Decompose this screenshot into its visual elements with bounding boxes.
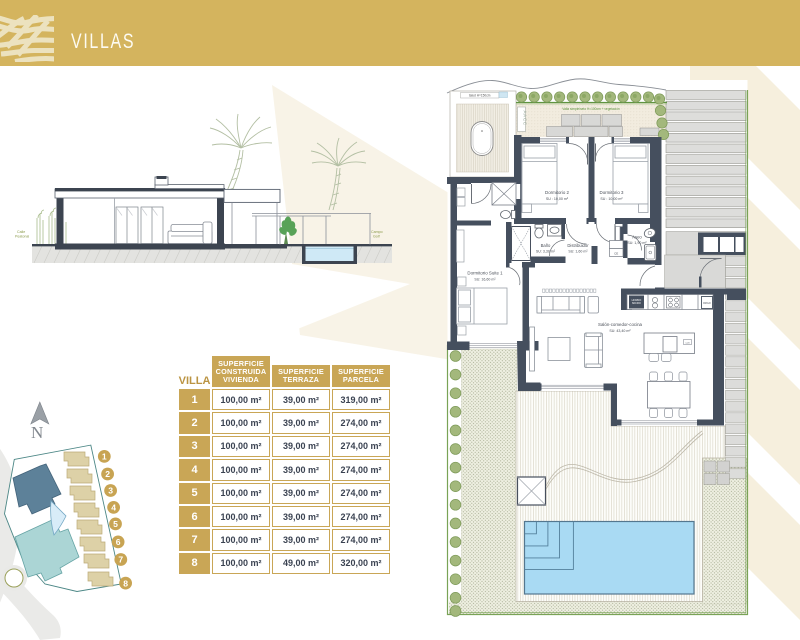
svg-text:Golf: Golf bbox=[373, 235, 380, 239]
svg-text:SU : 10,00 m²: SU : 10,00 m² bbox=[600, 197, 623, 201]
svg-text:2: 2 bbox=[105, 469, 110, 479]
svg-text:CE: CE bbox=[614, 252, 618, 256]
svg-text:talud H=150cm: talud H=150cm bbox=[469, 94, 491, 98]
svg-text:MICRO: MICRO bbox=[632, 301, 641, 305]
svg-text:Baño: Baño bbox=[541, 243, 551, 248]
svg-text:6: 6 bbox=[116, 537, 121, 547]
svg-text:SU: 43,40 m²: SU: 43,40 m² bbox=[609, 329, 631, 333]
svg-text:Distribuidor: Distribuidor bbox=[567, 243, 589, 248]
svg-text:SU: 3,30 m²: SU: 3,30 m² bbox=[536, 250, 556, 254]
svg-text:Dormitorio 2: Dormitorio 2 bbox=[545, 190, 569, 195]
svg-text:7: 7 bbox=[118, 555, 123, 565]
svg-text:FRIGO: FRIGO bbox=[703, 302, 711, 305]
svg-text:SU: 16,60 m²: SU: 16,60 m² bbox=[474, 278, 496, 282]
svg-text:5: 5 bbox=[113, 519, 118, 529]
svg-text:Aseo: Aseo bbox=[632, 235, 642, 240]
svg-text:HORNO: HORNO bbox=[632, 298, 642, 302]
svg-text:Valla simple/seto H=100cm + ve: Valla simple/seto H=100cm + vegetación bbox=[562, 107, 620, 111]
svg-text:Dormitorio 3: Dormitorio 3 bbox=[600, 190, 624, 195]
svg-text:4: 4 bbox=[111, 503, 116, 513]
svg-text:Campo: Campo bbox=[371, 230, 383, 234]
svg-text:N: N bbox=[31, 423, 43, 442]
svg-text:Dormitorio Suite 1: Dormitorio Suite 1 bbox=[467, 271, 503, 276]
svg-text:Salón-comedor-cocina: Salón-comedor-cocina bbox=[598, 322, 642, 327]
svg-text:SU: 1,60 m²: SU: 1,60 m² bbox=[568, 250, 588, 254]
svg-text:3: 3 bbox=[108, 486, 113, 496]
svg-text:Calle: Calle bbox=[17, 230, 25, 234]
svg-text:8: 8 bbox=[123, 578, 128, 588]
svg-text:SU: 1,90 m²: SU: 1,90 m² bbox=[627, 241, 647, 245]
svg-text:AACC: AACC bbox=[523, 111, 528, 126]
svg-text:1: 1 bbox=[102, 452, 107, 462]
svg-text:Peatonal: Peatonal bbox=[15, 235, 29, 239]
svg-text:SU : 10,00 m²: SU : 10,00 m² bbox=[546, 197, 569, 201]
